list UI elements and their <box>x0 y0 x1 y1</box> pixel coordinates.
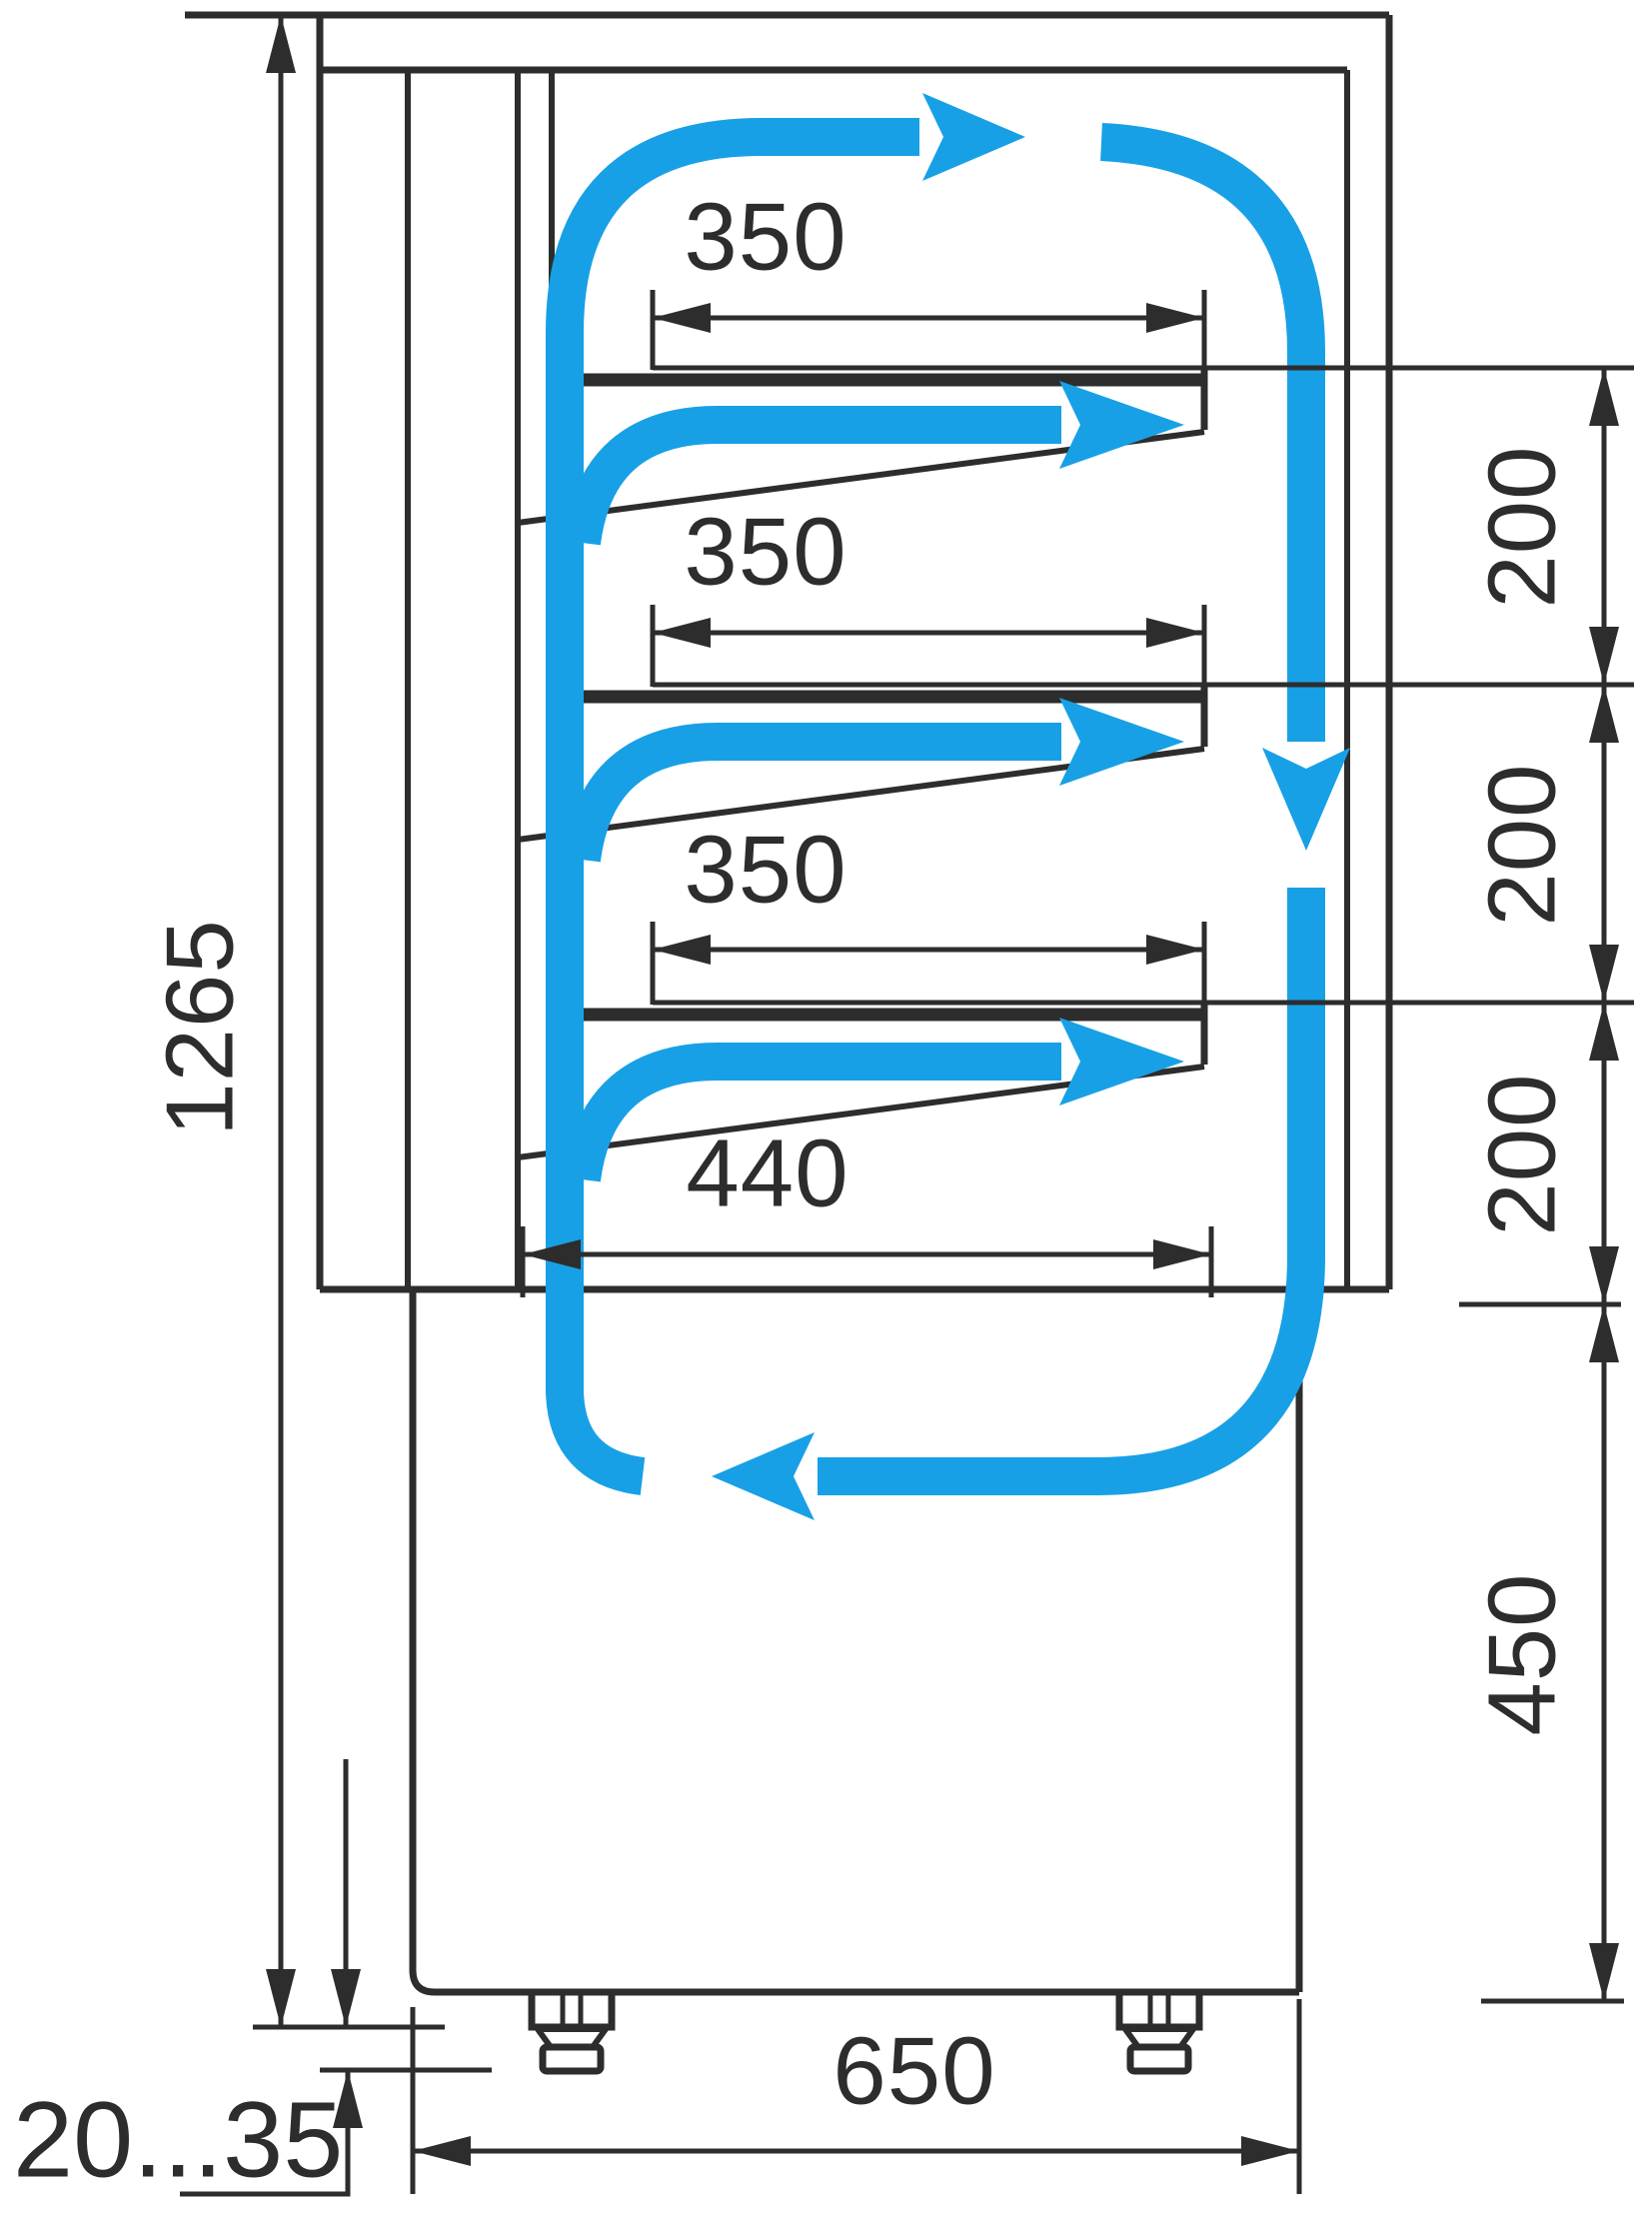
dim-label-200-1: 200 <box>1469 445 1576 608</box>
airflow-bottom-left-arrow-icon <box>712 1432 815 1520</box>
dim-label-350-3: 350 <box>684 817 846 924</box>
airflow-loop <box>565 93 1350 1520</box>
airflow-outlet-1-arrow-icon <box>1059 381 1184 469</box>
display-case-diagram: 350 350 350 440 <box>0 0 1652 2213</box>
dim-label-200-3: 200 <box>1469 1073 1576 1235</box>
dim-label-650: 650 <box>832 2018 995 2125</box>
dim-label-450: 450 <box>1469 1572 1576 1735</box>
airflow-shelf-outlet-1 <box>582 381 1184 543</box>
adjustable-foot-right <box>1119 1992 1199 2071</box>
airflow-shelf-outlet-3 <box>582 1018 1184 1179</box>
dim-label-350-2: 350 <box>684 499 846 606</box>
dim-shelf-3-width: 350 <box>653 817 1204 1006</box>
dim-label-foot-range: 20...35 <box>13 2079 343 2200</box>
dim-right-chain: 200 200 200 450 <box>1459 368 1624 2001</box>
dim-label-350-1: 350 <box>684 184 846 291</box>
airflow-down-arrow-icon <box>1262 748 1350 851</box>
dim-deck-width: 440 <box>523 1120 1211 1298</box>
airflow-shelf-outlet-2 <box>582 698 1184 860</box>
dim-label-200-2: 200 <box>1469 763 1576 926</box>
dim-350-3-ticks <box>653 922 1204 1005</box>
dim-350-1-ticks <box>653 290 1204 370</box>
dim-shelf-2-width: 350 <box>653 499 1204 688</box>
dim-overall-height: 1265 <box>147 15 446 2027</box>
dim-foot-adjustment: 20...35 <box>13 1759 363 2200</box>
dim-350-2-ticks <box>653 605 1204 687</box>
airflow-outlet-2-arrow-icon <box>1059 698 1184 786</box>
base-back-and-bottom <box>413 1289 1299 1992</box>
airflow-outlet-3-arrow-icon <box>1059 1018 1184 1106</box>
foot-left-pad <box>543 2047 601 2071</box>
drawing-canvas: 350 350 350 440 <box>0 0 1652 2213</box>
foot-right-mount-block <box>1119 1992 1199 2027</box>
dim-200-1-top-arrow-icon <box>1589 368 1619 426</box>
foot-left-mount-block <box>532 1992 612 2027</box>
airflow-top-right-arrow-icon <box>922 93 1025 181</box>
dim-450-bottom-arrow-icon <box>1589 1943 1619 2001</box>
dim-label-1265: 1265 <box>147 919 254 1136</box>
dim-2035-down-arrow-icon <box>331 1969 361 2027</box>
foot-right-pad <box>1130 2047 1188 2071</box>
dim-label-440: 440 <box>686 1120 848 1227</box>
dim-shelf-1-width: 350 <box>653 184 1204 371</box>
airflow-front-descender-lower-and-bottom-run <box>818 888 1306 1476</box>
adjustable-foot-left <box>532 1992 612 2071</box>
